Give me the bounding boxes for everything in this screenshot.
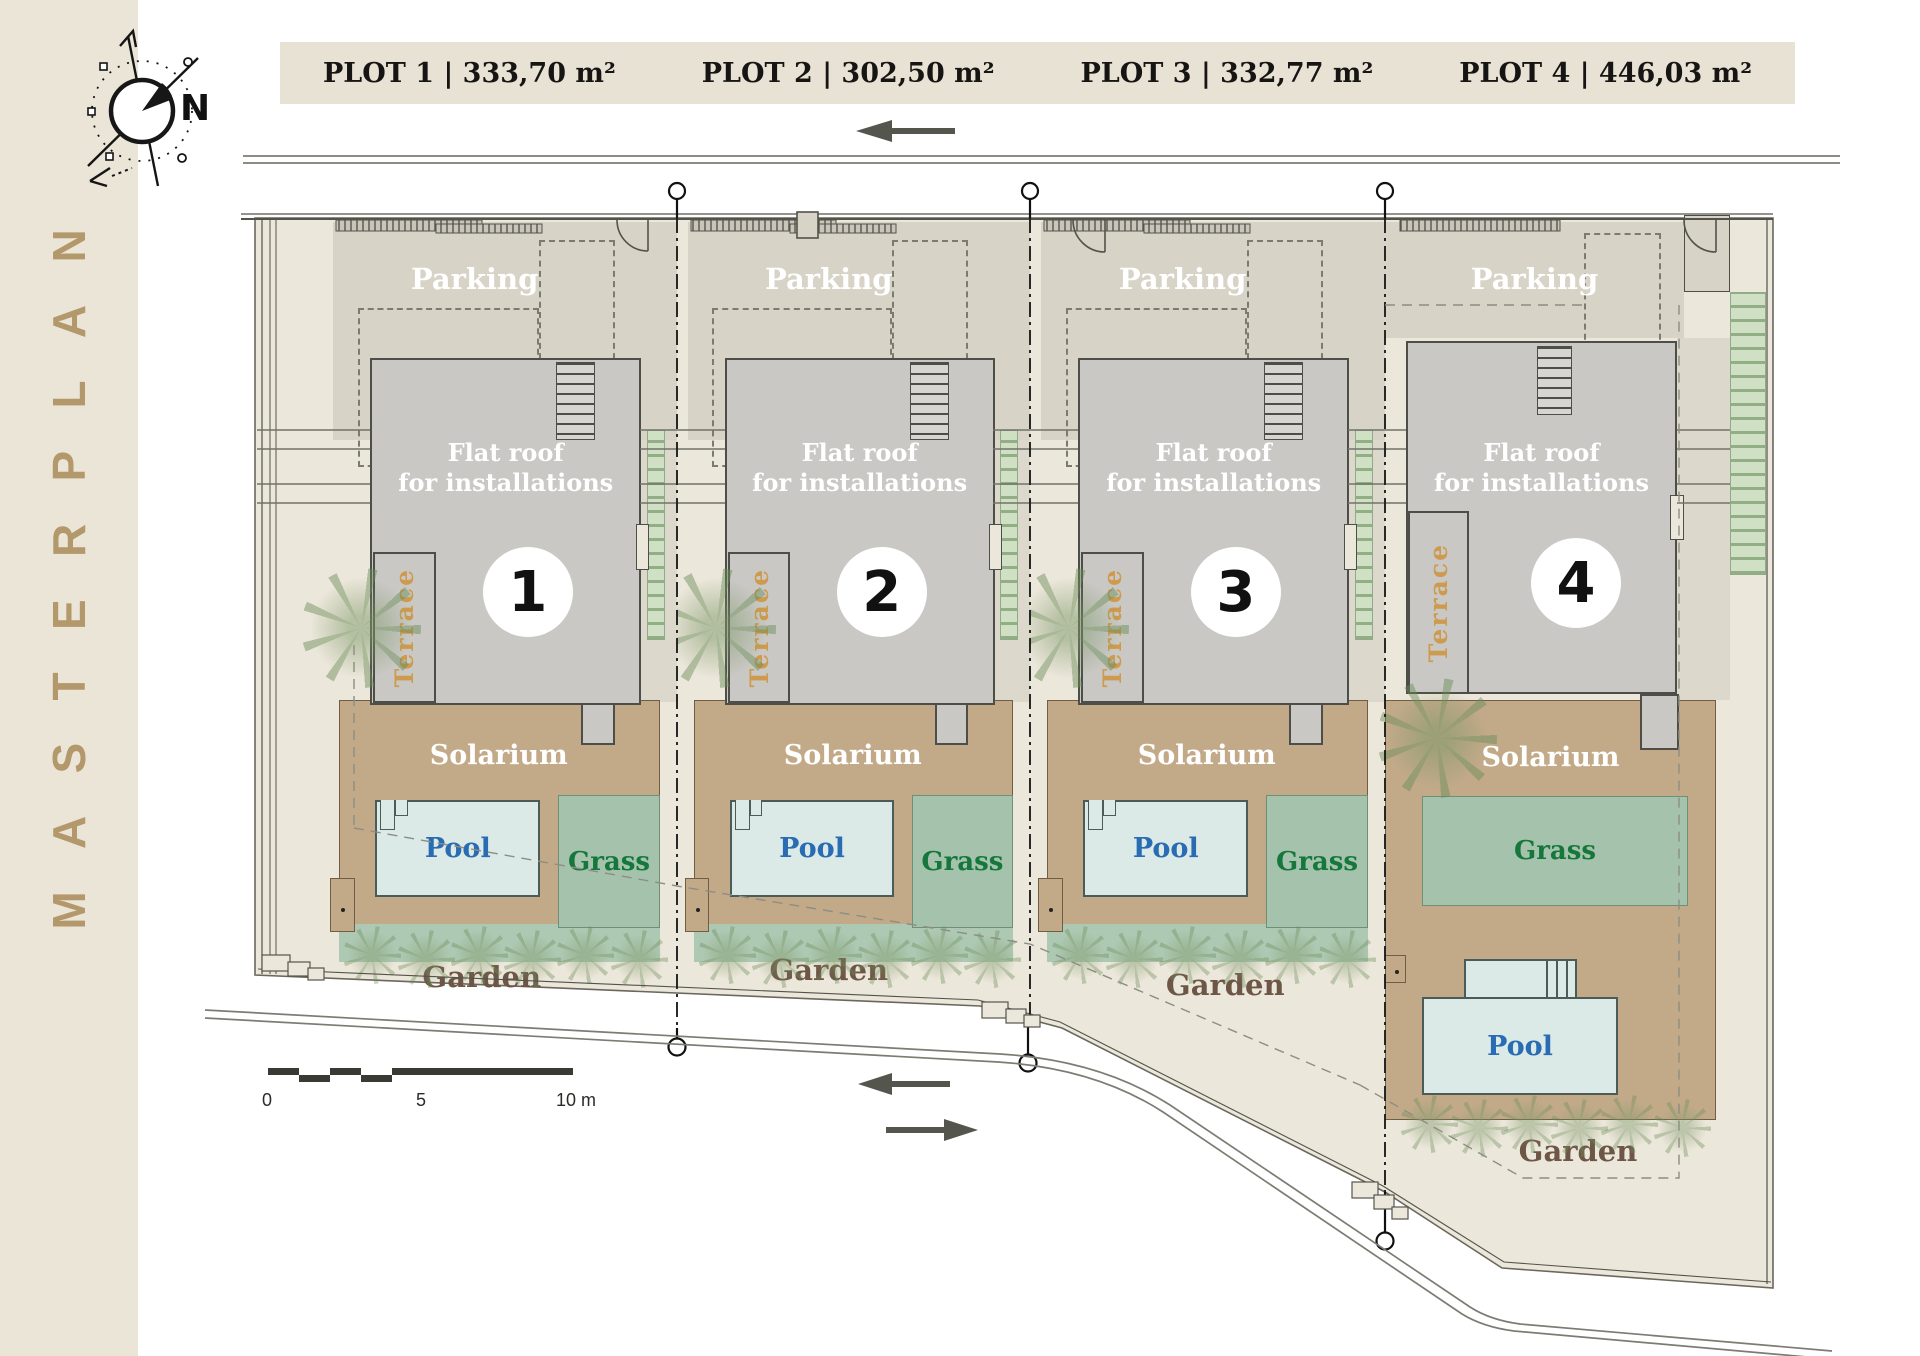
pillar bbox=[935, 703, 969, 745]
solarium-corner bbox=[330, 878, 355, 932]
palm-tree-icon bbox=[1211, 930, 1269, 988]
entrance-wall bbox=[1684, 215, 1730, 292]
solarium-label: Solarium bbox=[339, 740, 659, 771]
plot-number-badge: 3 bbox=[1191, 547, 1281, 637]
palm-tree-icon bbox=[1377, 678, 1497, 798]
palm-tree-icon bbox=[1600, 1095, 1658, 1153]
pool-area: Pool bbox=[1422, 997, 1618, 1095]
stairs-icon bbox=[910, 362, 949, 440]
side-passage bbox=[1677, 338, 1730, 700]
plot-header-bar: PLOT 1 | 333,70 m² PLOT 2 | 302,50 m² PL… bbox=[280, 42, 1795, 104]
hedge-strip bbox=[1355, 430, 1373, 640]
palm-tree-icon bbox=[804, 926, 862, 984]
grass-label: Grass bbox=[921, 847, 1003, 877]
palm-tree-icon bbox=[751, 930, 809, 988]
palm-tree-icon bbox=[503, 930, 561, 988]
grass-area: Grass bbox=[1422, 796, 1688, 906]
pillar bbox=[581, 703, 615, 745]
flat-roof-label: Flat roof for installations bbox=[1078, 438, 1350, 498]
grass-area: Grass bbox=[1266, 795, 1368, 928]
masterplan-canvas: MASTERPLAN N PLOT 1 | 333,70 m² PLOT 2 |… bbox=[0, 0, 1920, 1356]
plot3-header: PLOT 3 | 332,77 m² bbox=[1038, 42, 1417, 104]
grass-label: Grass bbox=[1276, 847, 1358, 877]
parking-label: Parking bbox=[1041, 262, 1325, 296]
pool-steps bbox=[750, 800, 763, 816]
palm-tree-icon bbox=[1318, 930, 1376, 988]
plot-unit-1: Grass Pool Terrace Parking Flat roof for… bbox=[322, 0, 677, 1356]
grass-label: Grass bbox=[1514, 836, 1596, 866]
palm-tree-icon bbox=[556, 926, 614, 984]
grass-area: Grass bbox=[558, 795, 660, 928]
parking-label: Parking bbox=[688, 262, 970, 296]
parking-label: Parking bbox=[333, 262, 617, 296]
palm-tree-icon bbox=[1158, 926, 1216, 984]
pool-steps bbox=[380, 800, 394, 830]
palm-tree-icon bbox=[1653, 1099, 1711, 1157]
pool-label: Pool bbox=[425, 833, 491, 864]
hedge-strip bbox=[1730, 292, 1766, 575]
pool-steps bbox=[1088, 800, 1102, 830]
compass-north-label: N bbox=[180, 88, 210, 129]
palm-tree-icon bbox=[857, 930, 915, 988]
pool-label: Pool bbox=[1133, 833, 1199, 864]
terrace-area: Terrace bbox=[1408, 511, 1469, 694]
door-notch bbox=[989, 524, 1001, 570]
grass-area: Grass bbox=[912, 795, 1013, 928]
terrace-label: Terrace bbox=[1424, 543, 1453, 662]
stairs-icon bbox=[1264, 362, 1303, 440]
door-notch bbox=[636, 524, 648, 570]
pool-area: Pool bbox=[375, 800, 540, 897]
stairs-icon bbox=[1537, 346, 1572, 415]
solarium-corner bbox=[1385, 955, 1406, 983]
pillar bbox=[1289, 703, 1323, 745]
plot2-header: PLOT 2 | 302,50 m² bbox=[659, 42, 1038, 104]
palm-tree-icon bbox=[450, 926, 508, 984]
palm-tree-icon bbox=[910, 926, 968, 984]
solarium-corner bbox=[1038, 878, 1063, 932]
compass-icon: N bbox=[70, 16, 220, 191]
hedge-strip bbox=[1000, 430, 1018, 640]
palm-tree-icon bbox=[963, 930, 1021, 988]
plots-container: Grass Pool Terrace Parking Flat roof for… bbox=[0, 0, 1920, 1356]
pool-steps bbox=[395, 800, 408, 816]
palm-tree-icon bbox=[301, 568, 421, 688]
pool-label: Pool bbox=[1487, 1031, 1553, 1062]
grass-label: Grass bbox=[568, 847, 650, 877]
flat-roof-label: Flat roof for installations bbox=[370, 438, 642, 498]
solarium-corner bbox=[685, 878, 710, 932]
pool-area: Pool bbox=[730, 800, 894, 897]
stairs-icon bbox=[556, 362, 595, 440]
parking-label: Parking bbox=[1385, 262, 1684, 296]
pool-steps bbox=[735, 800, 749, 830]
palm-tree-icon bbox=[698, 926, 756, 984]
palm-tree-icon bbox=[610, 930, 668, 988]
palm-tree-icon bbox=[343, 926, 401, 984]
solarium-label: Solarium bbox=[1047, 740, 1367, 771]
plot-unit-4: Grass Pool Terrace Parking Flat roof for… bbox=[1385, 0, 1773, 1356]
plot-unit-2: Grass Pool Terrace Parking Flat roof for… bbox=[677, 0, 1030, 1356]
door-notch bbox=[1344, 524, 1356, 570]
plot4-header: PLOT 4 | 446,03 m² bbox=[1416, 42, 1795, 104]
plot-unit-3: Grass Pool Terrace Parking Flat roof for… bbox=[1030, 0, 1385, 1356]
pool-steps bbox=[1103, 800, 1116, 816]
palm-tree-icon bbox=[1105, 930, 1163, 988]
palm-tree-icon bbox=[397, 930, 455, 988]
pool-area: Pool bbox=[1083, 800, 1248, 897]
solarium-label: Solarium bbox=[694, 740, 1012, 771]
hedge-strip bbox=[647, 430, 665, 640]
flat-roof-label: Flat roof for installations bbox=[1406, 438, 1677, 498]
pool-label: Pool bbox=[779, 833, 845, 864]
plot-number-badge: 2 bbox=[837, 547, 927, 637]
plot-number-badge: 4 bbox=[1531, 538, 1621, 628]
door-notch bbox=[1670, 495, 1684, 540]
flat-roof-label: Flat roof for installations bbox=[725, 438, 995, 498]
plot1-header: PLOT 1 | 333,70 m² bbox=[280, 42, 659, 104]
palm-tree-icon bbox=[1051, 926, 1109, 984]
pool-ladder-icon bbox=[1546, 961, 1577, 997]
palm-tree-icon bbox=[1264, 926, 1322, 984]
plot-number-badge: 1 bbox=[483, 547, 573, 637]
